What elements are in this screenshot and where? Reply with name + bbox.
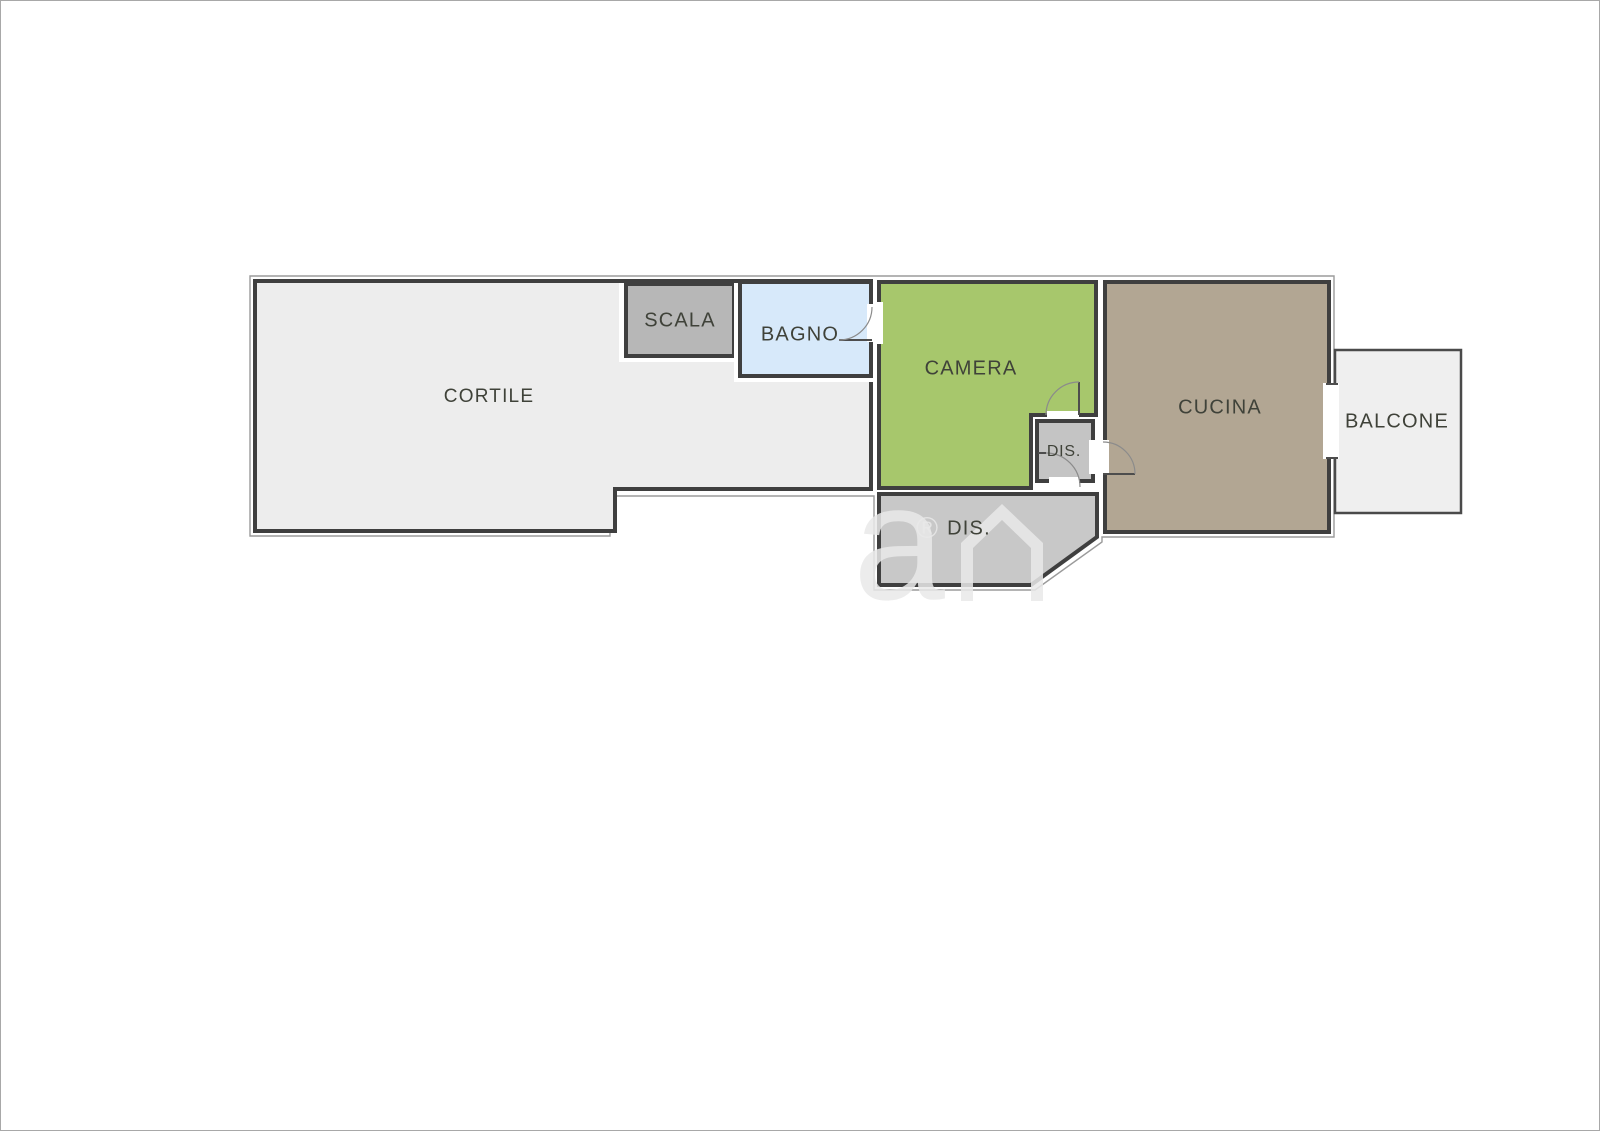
- wall-opening-balcone: [1323, 383, 1339, 459]
- floor-plan-svg: a ® CORTILE SCALA BAGNO CAMERA DIS. DIS.…: [1, 1, 1600, 1131]
- floor-plan-page: a ® CORTILE SCALA BAGNO CAMERA DIS. DIS.…: [0, 0, 1600, 1131]
- label-camera: CAMERA: [925, 357, 1018, 379]
- wall-opening-cucina-left: [1101, 440, 1109, 474]
- label-scala: SCALA: [644, 309, 716, 331]
- label-cortile: CORTILE: [444, 386, 534, 407]
- label-dis-large: DIS.: [947, 517, 991, 539]
- label-bagno: BAGNO: [761, 323, 839, 345]
- wall-opening-camera-left: [875, 302, 883, 344]
- label-balcone: BALCONE: [1345, 410, 1449, 432]
- wall-opening-dis-bottom: [1049, 477, 1079, 485]
- wall-opening-dis-right: [1089, 440, 1097, 474]
- label-dis-small: DIS.: [1047, 443, 1081, 460]
- wall-opening-camera-dis: [1047, 411, 1079, 419]
- label-cucina: CUCINA: [1178, 396, 1262, 418]
- registered-trademark-icon: ®: [916, 512, 938, 545]
